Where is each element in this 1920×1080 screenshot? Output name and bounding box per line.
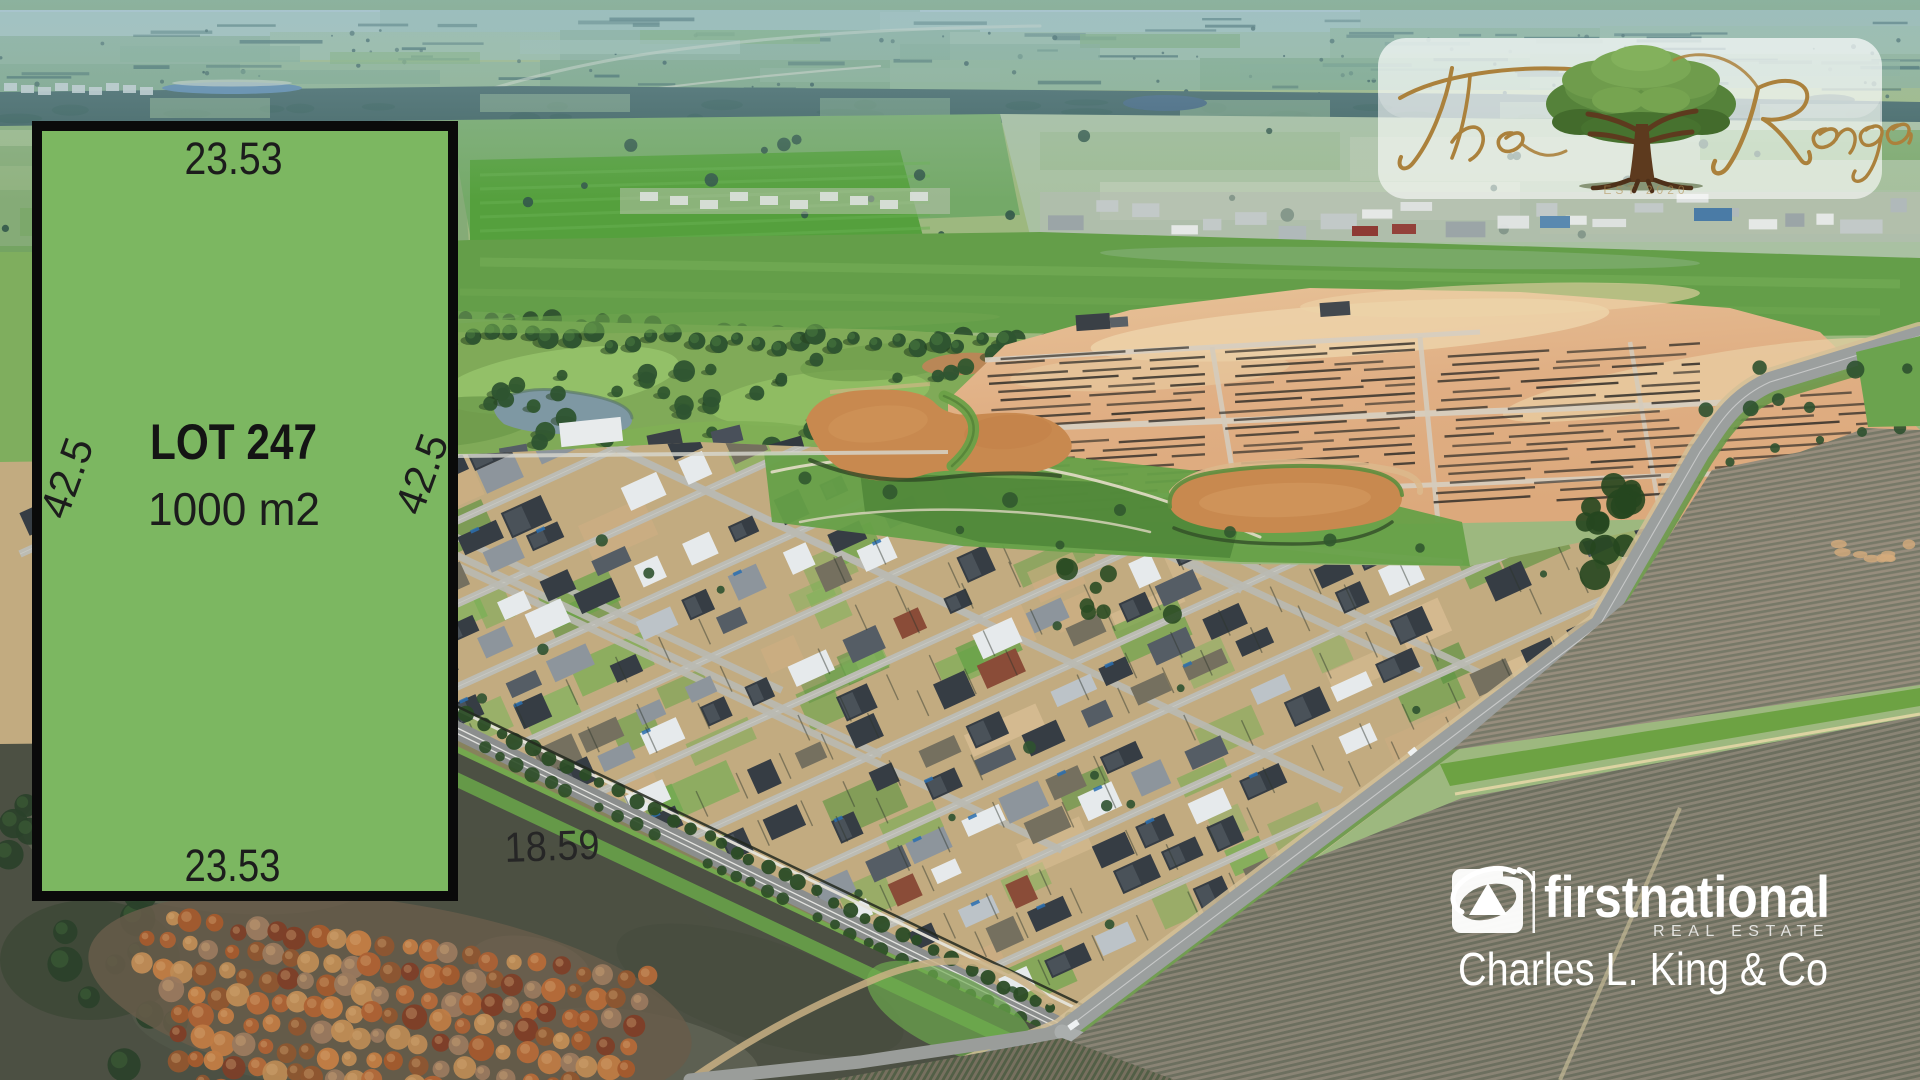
svg-text:LOT 247: LOT 247	[150, 414, 317, 470]
svg-text:23.53: 23.53	[185, 840, 281, 891]
svg-text:23.53: 23.53	[185, 133, 283, 184]
svg-text:1000 m2: 1000 m2	[148, 483, 320, 535]
svg-text:REAL ESTATE: REAL ESTATE	[1653, 923, 1830, 940]
svg-text:EST 2020: EST 2020	[1603, 183, 1688, 197]
svg-text:18.59: 18.59	[504, 821, 601, 871]
svg-text:Charles L. King & Co: Charles L. King & Co	[1458, 943, 1828, 995]
svg-text:firstnational: firstnational	[1544, 865, 1830, 930]
